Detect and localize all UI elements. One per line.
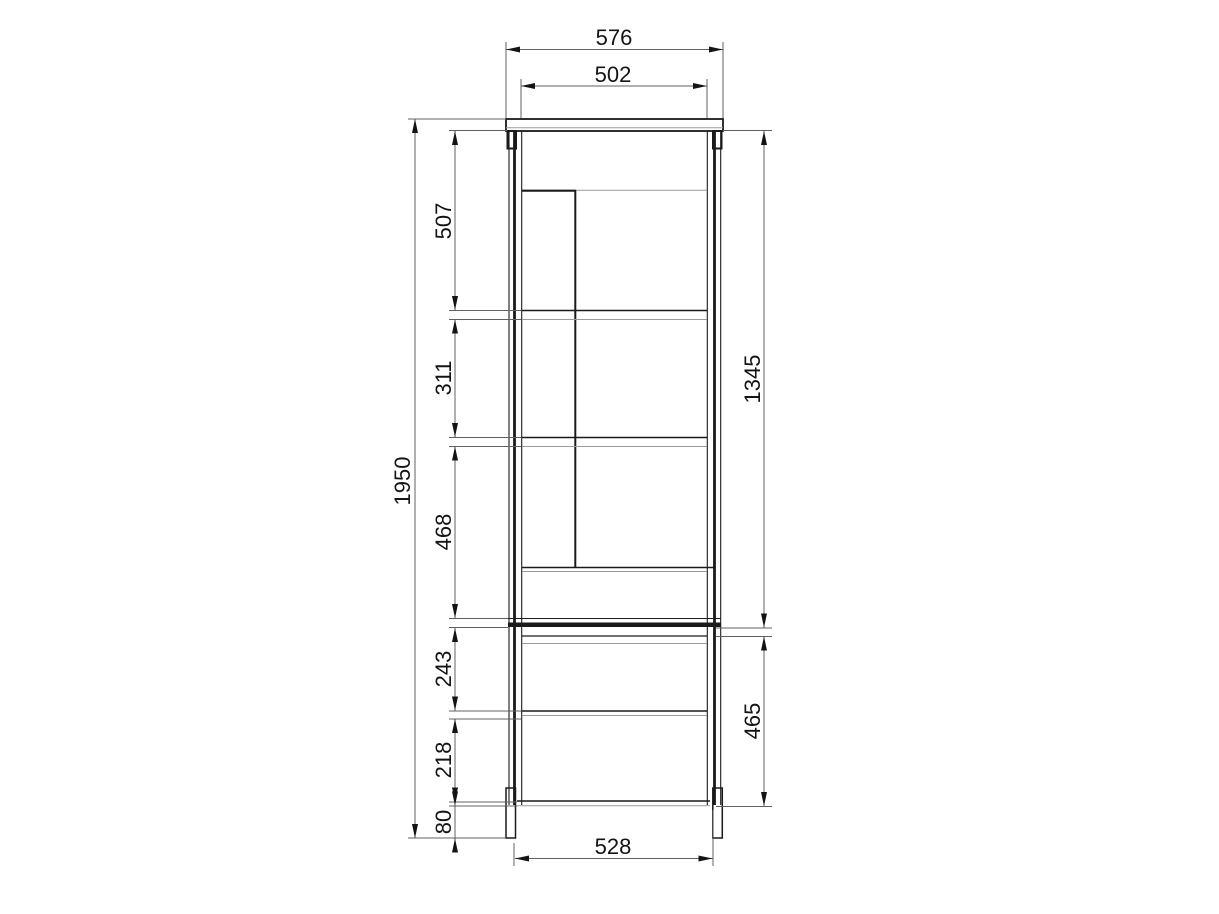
top-panel [506,119,723,131]
extension-lines [408,42,772,866]
label-plinth-height: 80 [431,810,456,834]
label-shelf-section-2: 311 [431,360,456,395]
label-inner-width: 502 [595,62,632,87]
label-base-width: 528 [595,834,632,859]
label-upper-unit-height: 1345 [740,355,765,404]
label-drawer-section-2: 218 [431,742,456,779]
label-overall-height: 1950 [390,457,415,506]
label-lower-unit-height: 465 [740,703,765,740]
technical-drawing-page: 576 502 1950 507 311 468 243 218 80 1345… [0,0,1219,914]
dimension-lines [415,50,764,859]
cabinet-elevation-drawing: 576 502 1950 507 311 468 243 218 80 1345… [0,0,1219,914]
label-shelf-section-1: 507 [431,203,456,240]
label-drawer-section-1: 243 [431,651,456,688]
dimension-labels: 576 502 1950 507 311 468 243 218 80 1345… [390,25,765,859]
label-shelf-section-3: 468 [431,514,456,551]
cabinet-outline [506,119,723,838]
label-top-width: 576 [596,25,633,50]
